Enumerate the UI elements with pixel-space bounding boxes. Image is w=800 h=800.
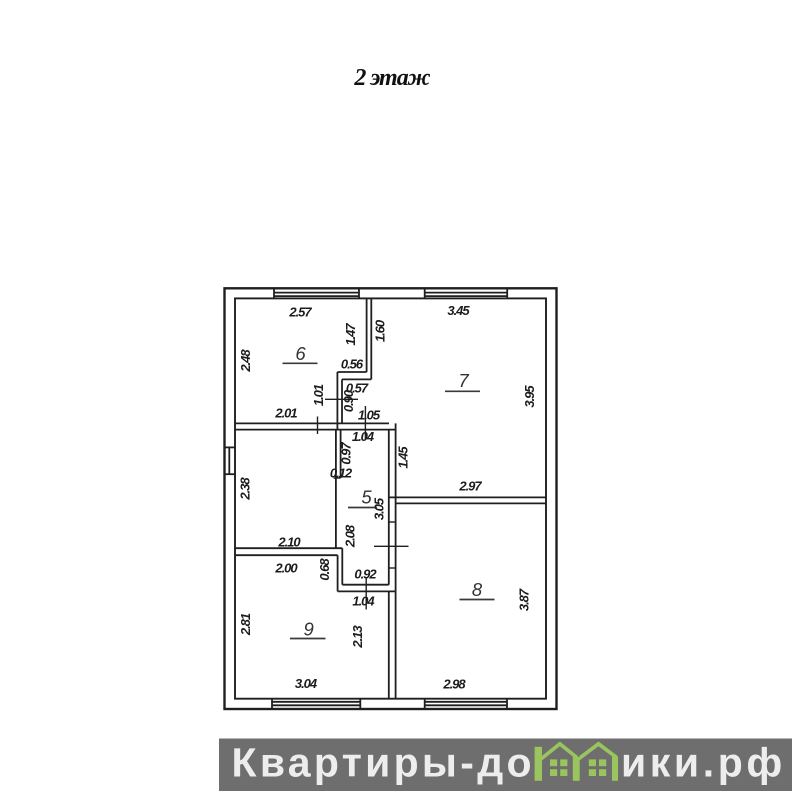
svg-text:2.01: 2.01 [274,406,297,421]
svg-text:0.90: 0.90 [341,389,356,412]
svg-text:1.04: 1.04 [352,594,375,609]
svg-text:0.68: 0.68 [317,558,332,581]
svg-text:1.45: 1.45 [396,446,411,469]
svg-text:ики.рф: ики.рф [621,740,786,786]
svg-text:2.00: 2.00 [274,561,298,576]
svg-text:2.97: 2.97 [458,479,482,494]
svg-text:2 этаж: 2 этаж [353,65,430,91]
svg-text:2.10: 2.10 [277,535,301,550]
svg-text:2.38: 2.38 [238,477,253,501]
svg-text:3.05: 3.05 [372,497,387,520]
svg-text:1.60: 1.60 [373,319,388,342]
svg-text:2.48: 2.48 [238,349,253,373]
svg-text:3.95: 3.95 [522,385,537,408]
svg-text:1.04: 1.04 [352,429,375,444]
svg-text:3.87: 3.87 [517,588,532,611]
svg-text:2.13: 2.13 [350,625,365,649]
svg-text:Квартиры-до: Квартиры-до [232,740,535,786]
svg-text:0.56: 0.56 [341,357,364,372]
svg-text:2.81: 2.81 [238,613,253,636]
svg-text:1.47: 1.47 [343,323,358,346]
svg-text:2.57: 2.57 [288,304,312,319]
svg-text:0.12: 0.12 [330,466,353,481]
svg-text:2.08: 2.08 [343,524,358,548]
svg-text:6: 6 [295,343,306,364]
svg-text:7: 7 [458,370,469,391]
svg-text:1.05: 1.05 [358,408,381,423]
svg-text:0.92: 0.92 [354,567,377,582]
svg-text:0.97: 0.97 [339,442,354,465]
svg-text:9: 9 [304,619,314,640]
svg-text:5: 5 [361,487,372,508]
svg-text:3.04: 3.04 [295,676,318,691]
svg-text:8: 8 [472,579,483,600]
svg-text:2.98: 2.98 [442,677,466,692]
svg-text:3.45: 3.45 [447,303,470,318]
svg-text:1.01: 1.01 [311,384,326,406]
